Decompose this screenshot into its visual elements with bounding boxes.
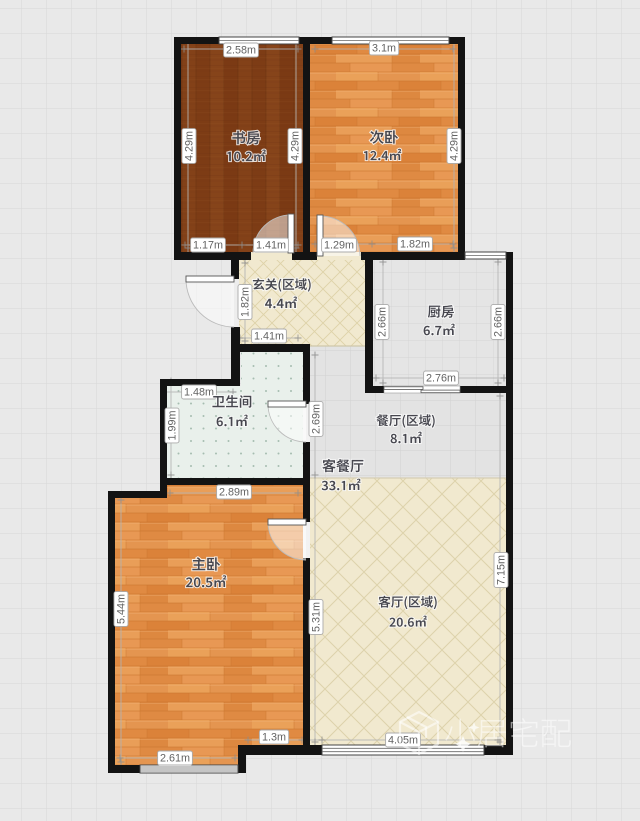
svg-text:2.76m: 2.76m — [426, 373, 456, 385]
svg-text:2.66m: 2.66m — [493, 307, 505, 337]
svg-text:2.58m: 2.58m — [226, 45, 256, 57]
svg-text:1.48m: 1.48m — [184, 387, 214, 399]
svg-text:5.31m: 5.31m — [311, 602, 323, 632]
svg-text:2.61m: 2.61m — [160, 753, 190, 765]
svg-text:1.82m: 1.82m — [400, 239, 430, 251]
svg-text:5.44m: 5.44m — [116, 594, 128, 624]
svg-text:2.69m: 2.69m — [311, 404, 323, 434]
svg-text:4.29m: 4.29m — [449, 131, 461, 161]
svg-text:4.29m: 4.29m — [290, 131, 302, 161]
svg-text:1.99m: 1.99m — [167, 410, 179, 440]
svg-text:2.66m: 2.66m — [377, 307, 389, 337]
svg-text:1.41m: 1.41m — [254, 331, 284, 343]
svg-text:4.29m: 4.29m — [184, 131, 196, 161]
svg-text:1.82m: 1.82m — [240, 287, 252, 317]
svg-text:1.3m: 1.3m — [262, 732, 286, 744]
svg-text:3.1m: 3.1m — [372, 43, 396, 55]
svg-text:1.29m: 1.29m — [324, 240, 354, 252]
svg-text:1.17m: 1.17m — [193, 240, 223, 252]
svg-text:7.15m: 7.15m — [496, 555, 508, 585]
svg-text:2.89m: 2.89m — [219, 487, 249, 499]
svg-text:1.41m: 1.41m — [256, 240, 286, 252]
